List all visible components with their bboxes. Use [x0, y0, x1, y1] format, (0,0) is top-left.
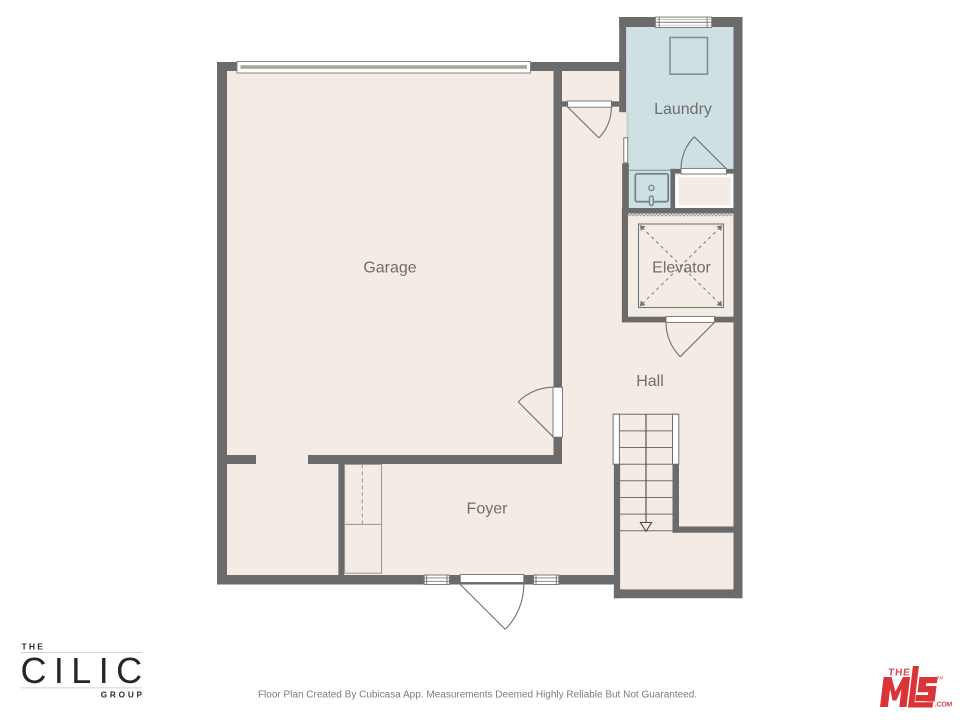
svg-text:TM: TM — [936, 676, 943, 681]
svg-text:CILIC: CILIC — [21, 650, 150, 691]
svg-text:Garage: Garage — [363, 260, 416, 277]
svg-text:.COM: .COM — [934, 702, 952, 709]
svg-text:Floor Plan Created By Cubicasa: Floor Plan Created By Cubicasa App. Meas… — [258, 689, 697, 700]
svg-text:GROUP: GROUP — [101, 690, 145, 699]
svg-text:THE: THE — [887, 667, 911, 678]
svg-text:Hall: Hall — [636, 373, 664, 390]
svg-text:Foyer: Foyer — [467, 501, 509, 518]
svg-text:Elevator: Elevator — [652, 260, 711, 277]
svg-text:Laundry: Laundry — [654, 101, 712, 118]
